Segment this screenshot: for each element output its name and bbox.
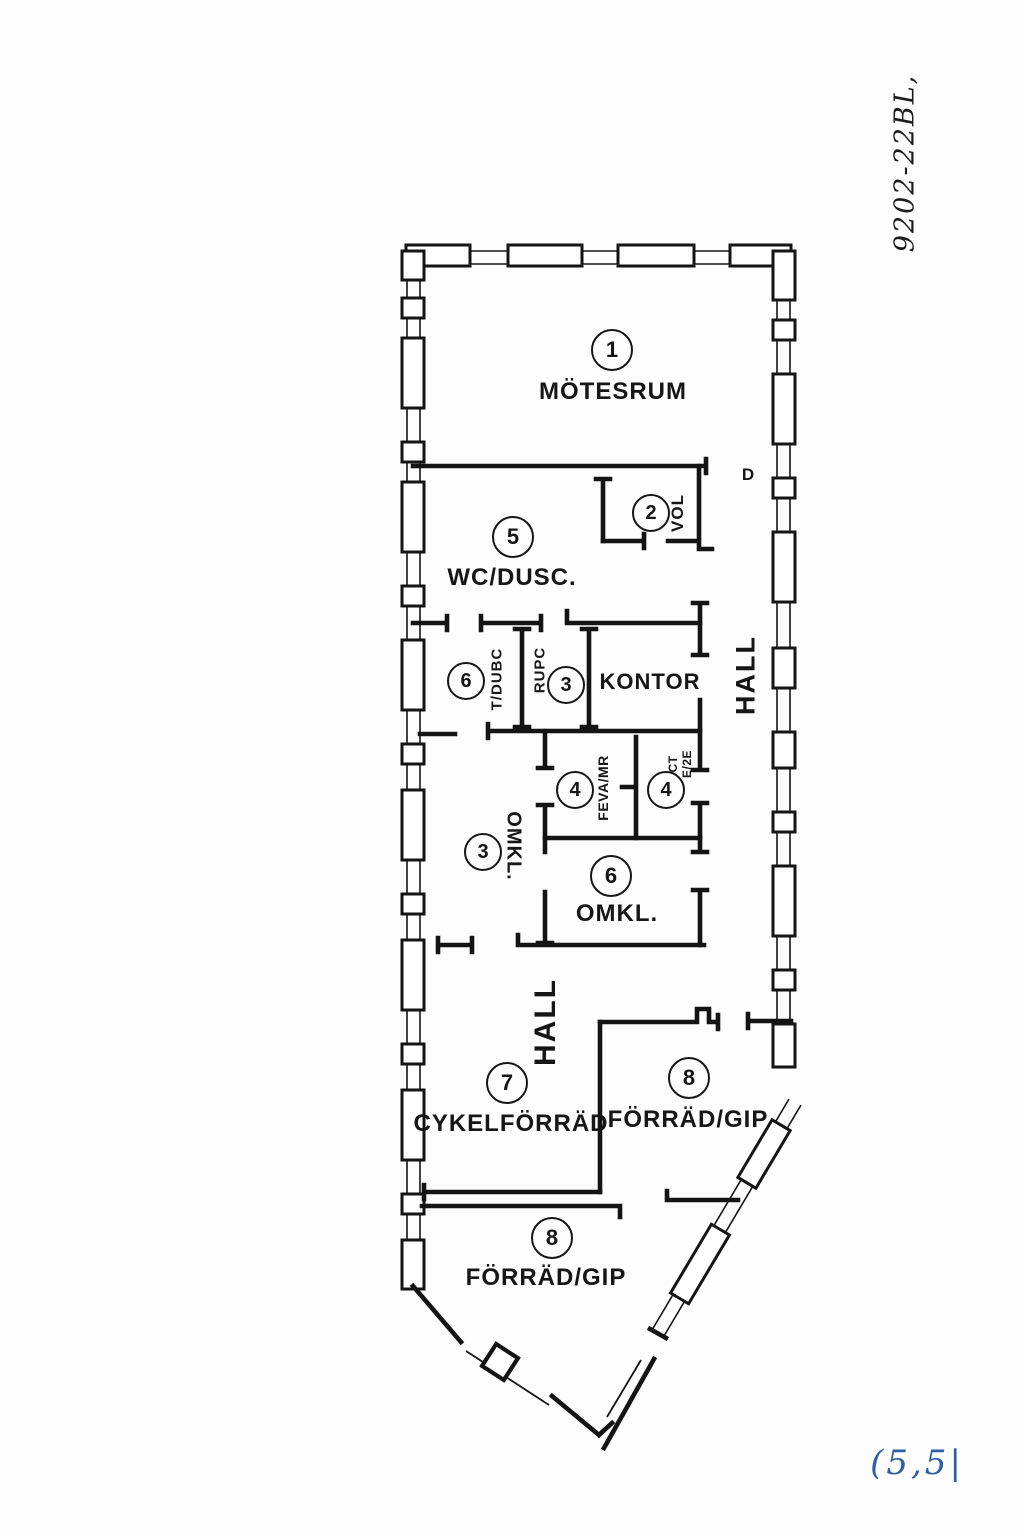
room-label-eltele: CT E/2E [667,750,695,778]
room-label-wcdusc: WC/DUSC. [447,564,576,592]
room-number-tdubc: 6 [447,662,485,700]
room-circle-rupc: 3 [547,666,585,704]
room-circle-forrad-bottom: 8 [531,1217,573,1259]
room-number-forrad-bottom: 8 [531,1217,573,1259]
hall-label-upper: HALL [731,635,762,715]
room-label-forrad-bottom: FÖRRÄD/GIP [466,1264,627,1292]
room-circle-vol: 2 [632,494,670,532]
room-label-cykel: CYKELFÖRRÄD [414,1110,609,1138]
floorplan-page: 1 MÖTESRUM D 2 VOL 5 WC/DUSC. 6 T/DUBC R… [0,0,1024,1536]
room-circle-forrad-right: 8 [668,1057,710,1099]
room-label-rupc: RUPC [532,647,549,694]
room-number-omkl3: 3 [464,833,502,871]
door-leaf [482,1344,518,1380]
handwritten-doc-number: 9202-22BL, [890,74,921,253]
room-label-forrad-right: FÖRRÄD/GIP [608,1106,769,1134]
door-label: D [742,465,754,485]
room-circle-fevamr: 4 [556,771,594,809]
hall-label-lower: HALL [529,978,563,1066]
room-number-motesrum: 1 [591,329,633,371]
room-number-omkl6: 6 [590,855,632,897]
room-label-kontor: KONTOR [600,669,701,695]
room-circle-cykel: 7 [486,1062,528,1104]
room-label-vol: VOL [668,494,688,532]
room-label-motesrum: MÖTESRUM [539,378,687,406]
room-circle-omkl3: 3 [464,833,502,871]
room-circle-wcdusc: 5 [492,516,534,558]
room-circle-omkl6: 6 [590,855,632,897]
room-label-tdubc: T/DUBC [489,648,506,711]
interior-walls [413,459,791,1448]
room-circle-motesrum: 1 [591,329,633,371]
room-label-omkl3: OMKL. [502,811,525,880]
room-number-forrad-right: 8 [668,1057,710,1099]
room-number-wcdusc: 5 [492,516,534,558]
handwritten-page-mark: (5,5| [870,1443,964,1483]
room-circle-tdubc: 6 [447,662,485,700]
floorplan-drawing [0,0,1024,1536]
room-number-rupc: 3 [547,666,585,704]
room-label-omkl6: OMKL. [576,900,658,928]
room-number-cykel: 7 [486,1062,528,1104]
room-label-fevamr: FEVA/MR [595,755,611,820]
room-number-fevamr: 4 [556,771,594,809]
room-number-vol: 2 [632,494,670,532]
